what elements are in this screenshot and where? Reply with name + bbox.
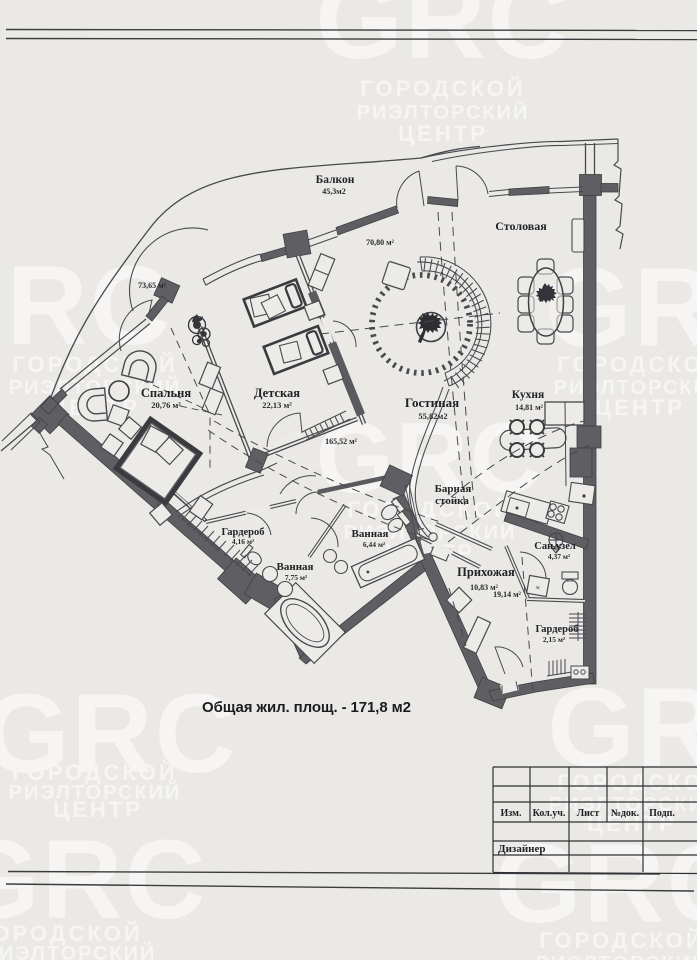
svg-text:14,81 м²: 14,81 м² [515, 403, 543, 412]
svg-text:55,82м2: 55,82м2 [418, 411, 447, 421]
svg-text:70,80 м²: 70,80 м² [366, 238, 394, 247]
svg-text:GRC: GRC [0, 243, 172, 368]
svg-text:РИЭЛТОРСКИЙ: РИЭЛТОРСКИЙ [536, 951, 697, 960]
svg-text:стойка: стойка [435, 495, 469, 507]
svg-text:45,3м2: 45,3м2 [322, 187, 345, 196]
svg-text:Изм.: Изм. [501, 808, 522, 819]
svg-text:Сан.узел: Сан.узел [534, 541, 576, 552]
svg-text:ЦЕНТР: ЦЕНТР [595, 395, 685, 420]
svg-text:ЦЕНТР: ЦЕНТР [398, 121, 488, 146]
svg-text:РИЭЛТОРСКИЙ: РИЭЛТОРСКИЙ [0, 941, 156, 960]
svg-text:4,16 м²: 4,16 м² [232, 537, 255, 546]
svg-text:ГОРОДСКОЙ: ГОРОДСКОЙ [557, 770, 697, 795]
svg-text:GRC: GRC [316, 0, 571, 82]
svg-text:Балкон: Балкон [316, 174, 355, 186]
svg-text:20,76 м²: 20,76 м² [151, 400, 181, 410]
svg-text:19,14 м²: 19,14 м² [493, 590, 521, 599]
svg-text:165,52 м²: 165,52 м² [325, 437, 357, 446]
svg-text:№док.: №док. [611, 808, 640, 819]
svg-text:Ванная: Ванная [277, 561, 314, 573]
svg-text:Гостиная: Гостиная [405, 395, 459, 410]
svg-text:Лист: Лист [577, 808, 600, 819]
svg-text:ГОРОДСКОЙ: ГОРОДСКОЙ [539, 928, 697, 953]
svg-text:ГОРОДСКОЙ: ГОРОДСКОЙ [360, 76, 525, 101]
svg-text:Детская: Детская [254, 386, 300, 400]
svg-text:Дизайнер: Дизайнер [498, 843, 546, 855]
svg-text:Кол.уч.: Кол.уч. [533, 808, 566, 819]
svg-text:7,75 м²: 7,75 м² [285, 573, 308, 582]
svg-text:Гардероб: Гардероб [535, 624, 578, 635]
svg-text:Прихожая: Прихожая [457, 565, 515, 579]
svg-text:Барная: Барная [435, 483, 472, 495]
svg-text:6,44 м²: 6,44 м² [363, 540, 386, 549]
svg-text:Кухня: Кухня [512, 389, 544, 401]
svg-text:22,13 м²: 22,13 м² [262, 400, 292, 410]
svg-text:Спальня: Спальня [141, 386, 191, 400]
svg-text:ГОРОДСКОЙ: ГОРОДСКОЙ [557, 352, 697, 377]
svg-text:2,15 м²: 2,15 м² [543, 635, 566, 644]
svg-text:Подп.: Подп. [649, 808, 675, 819]
svg-text:Ванная: Ванная [352, 528, 389, 540]
svg-text:Столовая: Столовая [495, 219, 547, 233]
svg-text:4,37 м²: 4,37 м² [548, 552, 571, 561]
svg-text:Общая жил. площ. - 171,8 м2: Общая жил. площ. - 171,8 м2 [202, 699, 411, 716]
svg-text:73,65 м²: 73,65 м² [138, 281, 166, 290]
